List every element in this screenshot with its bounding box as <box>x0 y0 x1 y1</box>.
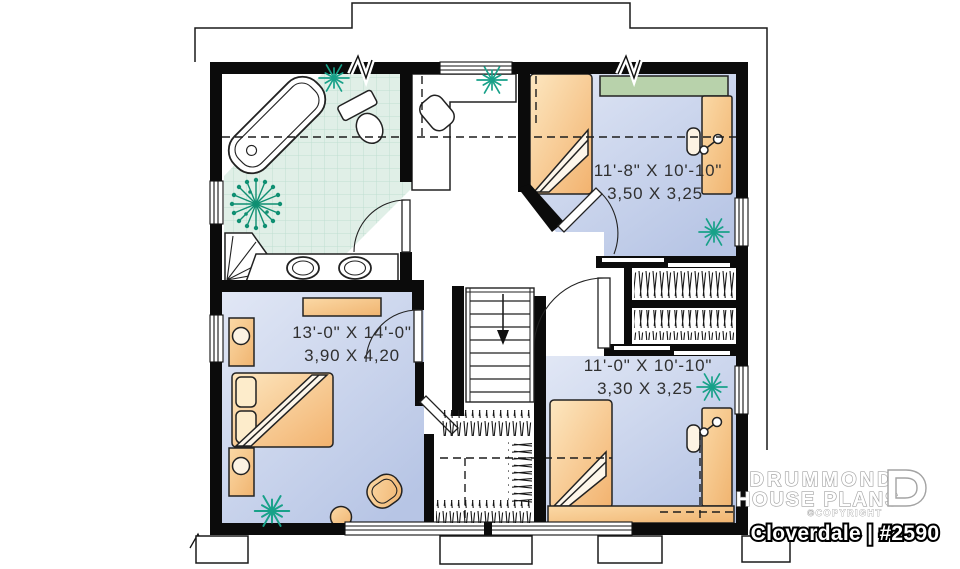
roof-bumpouts <box>196 536 790 564</box>
closet2-hatch <box>634 310 734 340</box>
master-bedroom-size-metric: 3,90 X 4,20 <box>304 346 400 365</box>
vanity <box>246 254 398 282</box>
brand-copyright: ©COPYRIGHT <box>807 508 882 518</box>
sink-right <box>339 257 371 279</box>
bedroom-lower-right-size-imperial: 11'-0" X 10'-10" <box>584 356 712 375</box>
wall-bath-east-upper <box>400 74 412 182</box>
lamp <box>233 328 250 345</box>
walkin-hatch-top <box>440 410 532 436</box>
pillow-1 <box>236 377 256 407</box>
plan-name-number: Cloverdale | #2590 <box>751 522 940 545</box>
branding-block: DRUMMOND HOUSE PLANS ©COPYRIGHT Cloverda… <box>736 469 940 545</box>
walkin-hatch-right <box>508 440 532 504</box>
staircase <box>466 288 534 402</box>
bedroom-upper-right-size-imperial: 11'-8" X 10'-10" <box>594 161 722 180</box>
window-right-bedroom1 <box>735 198 748 246</box>
dresser-master <box>303 298 381 316</box>
window-bottom-master <box>345 522 632 535</box>
wall-bedroom1-west <box>518 74 530 192</box>
desk-nook <box>412 74 516 190</box>
wall-bath-south <box>222 280 412 292</box>
nightstand-upper <box>229 318 254 366</box>
window-top <box>440 62 512 74</box>
desk-chair-upper-right <box>687 128 700 155</box>
sink-left <box>287 257 319 279</box>
closet1-hatch <box>634 270 734 298</box>
wall-master-east-upper <box>412 280 424 310</box>
window-right-bedroom2 <box>735 366 748 414</box>
brand-logo-icon <box>888 470 926 506</box>
brand-name-line1: DRUMMOND <box>749 469 894 491</box>
floor-plan-canvas: 13'-0" X 14'-0" 3,90 X 4,20 11'-8" X 10'… <box>0 0 960 569</box>
bedroom-lower-right-size-metric: 3,30 X 3,25 <box>597 379 693 398</box>
master-bedroom-size-imperial: 13'-0" X 14'-0" <box>292 323 411 342</box>
wall-closet-west <box>624 268 632 344</box>
bedroom-upper-right-size-metric: 3,50 X 3,25 <box>607 184 703 203</box>
nightstand-lower <box>229 448 254 496</box>
shelf-green <box>600 76 728 96</box>
dresser-lower-right <box>548 506 734 523</box>
wall-stair-left <box>452 286 464 416</box>
window-left-bath <box>210 181 223 224</box>
desk-chair-lower-right <box>687 425 700 452</box>
wall-walkin-left <box>424 434 434 523</box>
window-left-master <box>210 315 223 362</box>
walkin-hatch-bottom <box>436 500 532 523</box>
lamp <box>233 458 250 475</box>
wall-closet-mid <box>628 300 736 308</box>
floor-plan-page: 13'-0" X 14'-0" 3,90 X 4,20 11'-8" X 10'… <box>0 0 960 569</box>
plant-icon <box>230 178 282 230</box>
